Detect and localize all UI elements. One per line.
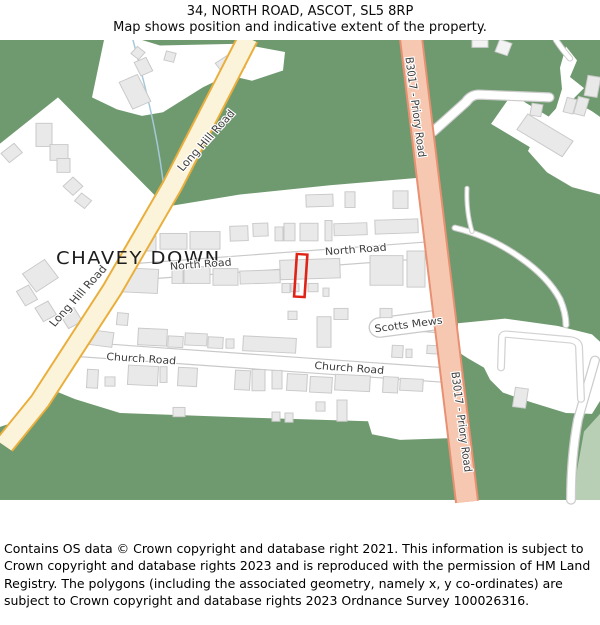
- page-header: 34, NORTH ROAD, ASCOT, SL5 8RP Map shows…: [0, 0, 600, 40]
- map-canvas: CHAVEY DOWN Long Hill Road Long Hill Roa…: [0, 40, 600, 537]
- page-subtitle: Map shows position and indicative extent…: [0, 19, 600, 35]
- copyright-footer: Contains OS data © Crown copyright and d…: [0, 537, 600, 624]
- page-title: 34, NORTH ROAD, ASCOT, SL5 8RP: [0, 0, 600, 19]
- map-svg: CHAVEY DOWN Long Hill Road Long Hill Roa…: [0, 40, 600, 537]
